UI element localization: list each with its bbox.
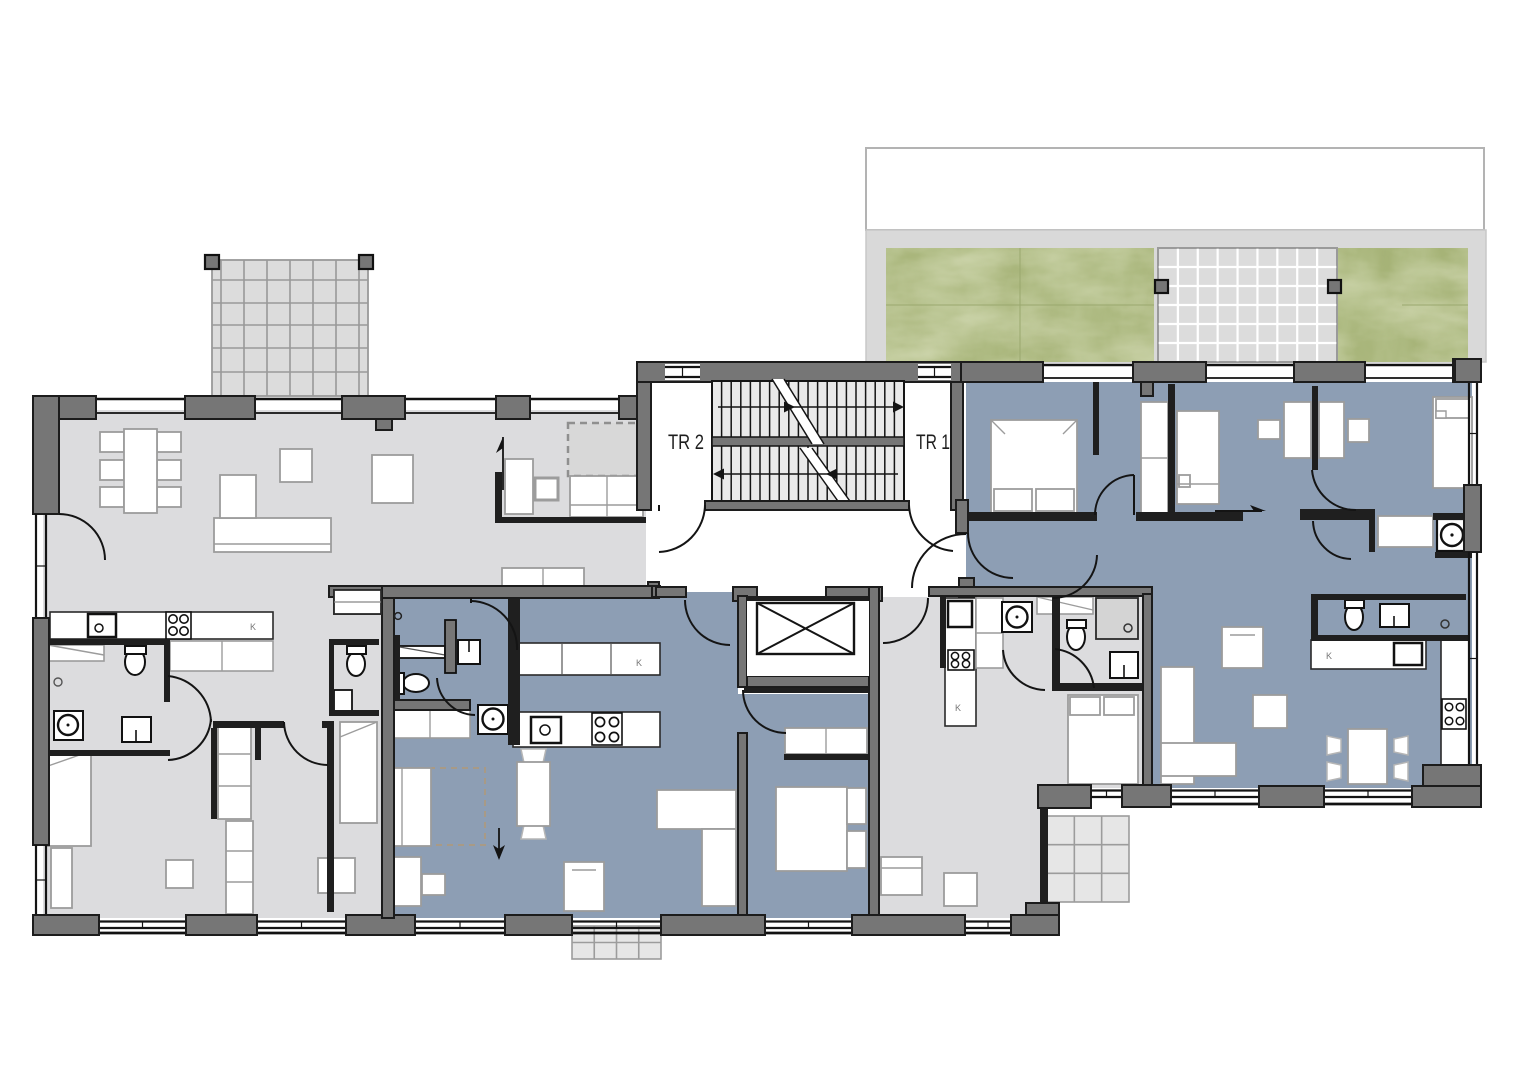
svg-text:TR 1: TR 1 [916,430,950,454]
svg-text:K: K [636,658,642,668]
svg-text:K: K [250,622,256,632]
svg-text:TR 2: TR 2 [668,430,704,454]
svg-text:K: K [955,703,961,713]
svg-text:K: K [1326,651,1332,661]
